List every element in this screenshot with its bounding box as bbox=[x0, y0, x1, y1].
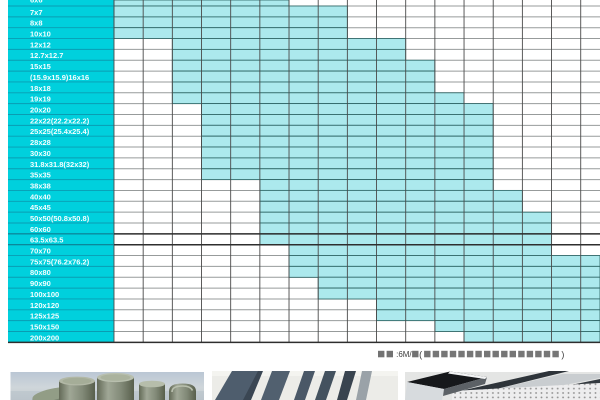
svg-text:50x50(50.8x50.8): 50x50(50.8x50.8) bbox=[30, 214, 90, 223]
svg-text:80x80: 80x80 bbox=[30, 268, 51, 277]
svg-text:45x45: 45x45 bbox=[30, 203, 51, 212]
svg-text:70x70: 70x70 bbox=[30, 247, 51, 256]
svg-text:35x35: 35x35 bbox=[30, 171, 51, 180]
svg-text:28x28: 28x28 bbox=[30, 138, 51, 147]
svg-text:10x10: 10x10 bbox=[30, 30, 51, 39]
svg-text:200x200: 200x200 bbox=[30, 333, 59, 342]
svg-text:25x25(25.4x25.4): 25x25(25.4x25.4) bbox=[30, 127, 90, 136]
svg-text:150x150: 150x150 bbox=[30, 323, 59, 332]
svg-text:12x12: 12x12 bbox=[30, 40, 51, 49]
svg-text:120x120: 120x120 bbox=[30, 301, 59, 310]
svg-text:19x19: 19x19 bbox=[30, 95, 51, 104]
svg-text:8x8: 8x8 bbox=[30, 19, 43, 28]
svg-text:): ) bbox=[561, 350, 564, 360]
svg-text:30x30: 30x30 bbox=[30, 149, 51, 158]
svg-text:(15.9x15.9)16x16: (15.9x15.9)16x16 bbox=[30, 73, 89, 82]
svg-text:31.8x31.8(32x32): 31.8x31.8(32x32) bbox=[30, 160, 90, 169]
svg-text:18x18: 18x18 bbox=[30, 84, 51, 93]
svg-text:125x125: 125x125 bbox=[30, 312, 59, 321]
svg-text:60x60: 60x60 bbox=[30, 225, 51, 234]
svg-text:20x20: 20x20 bbox=[30, 106, 51, 115]
svg-text:75x75(76.2x76.2): 75x75(76.2x76.2) bbox=[30, 257, 90, 266]
svg-text:15x15: 15x15 bbox=[30, 62, 51, 71]
svg-text:100x100: 100x100 bbox=[30, 290, 59, 299]
svg-text:38x38: 38x38 bbox=[30, 181, 51, 190]
svg-text:7x7: 7x7 bbox=[30, 8, 43, 17]
svg-text:6x6: 6x6 bbox=[30, 0, 43, 5]
svg-text:22x22(22.2x22.2): 22x22(22.2x22.2) bbox=[30, 116, 90, 125]
svg-text:(: ( bbox=[419, 350, 422, 360]
svg-text:40x40: 40x40 bbox=[30, 192, 51, 201]
svg-text:63.5x63.5: 63.5x63.5 bbox=[30, 236, 63, 245]
svg-text::6M/: :6M/ bbox=[396, 350, 412, 359]
svg-text:90x90: 90x90 bbox=[30, 279, 51, 288]
svg-text:12.7x12.7: 12.7x12.7 bbox=[30, 51, 63, 60]
